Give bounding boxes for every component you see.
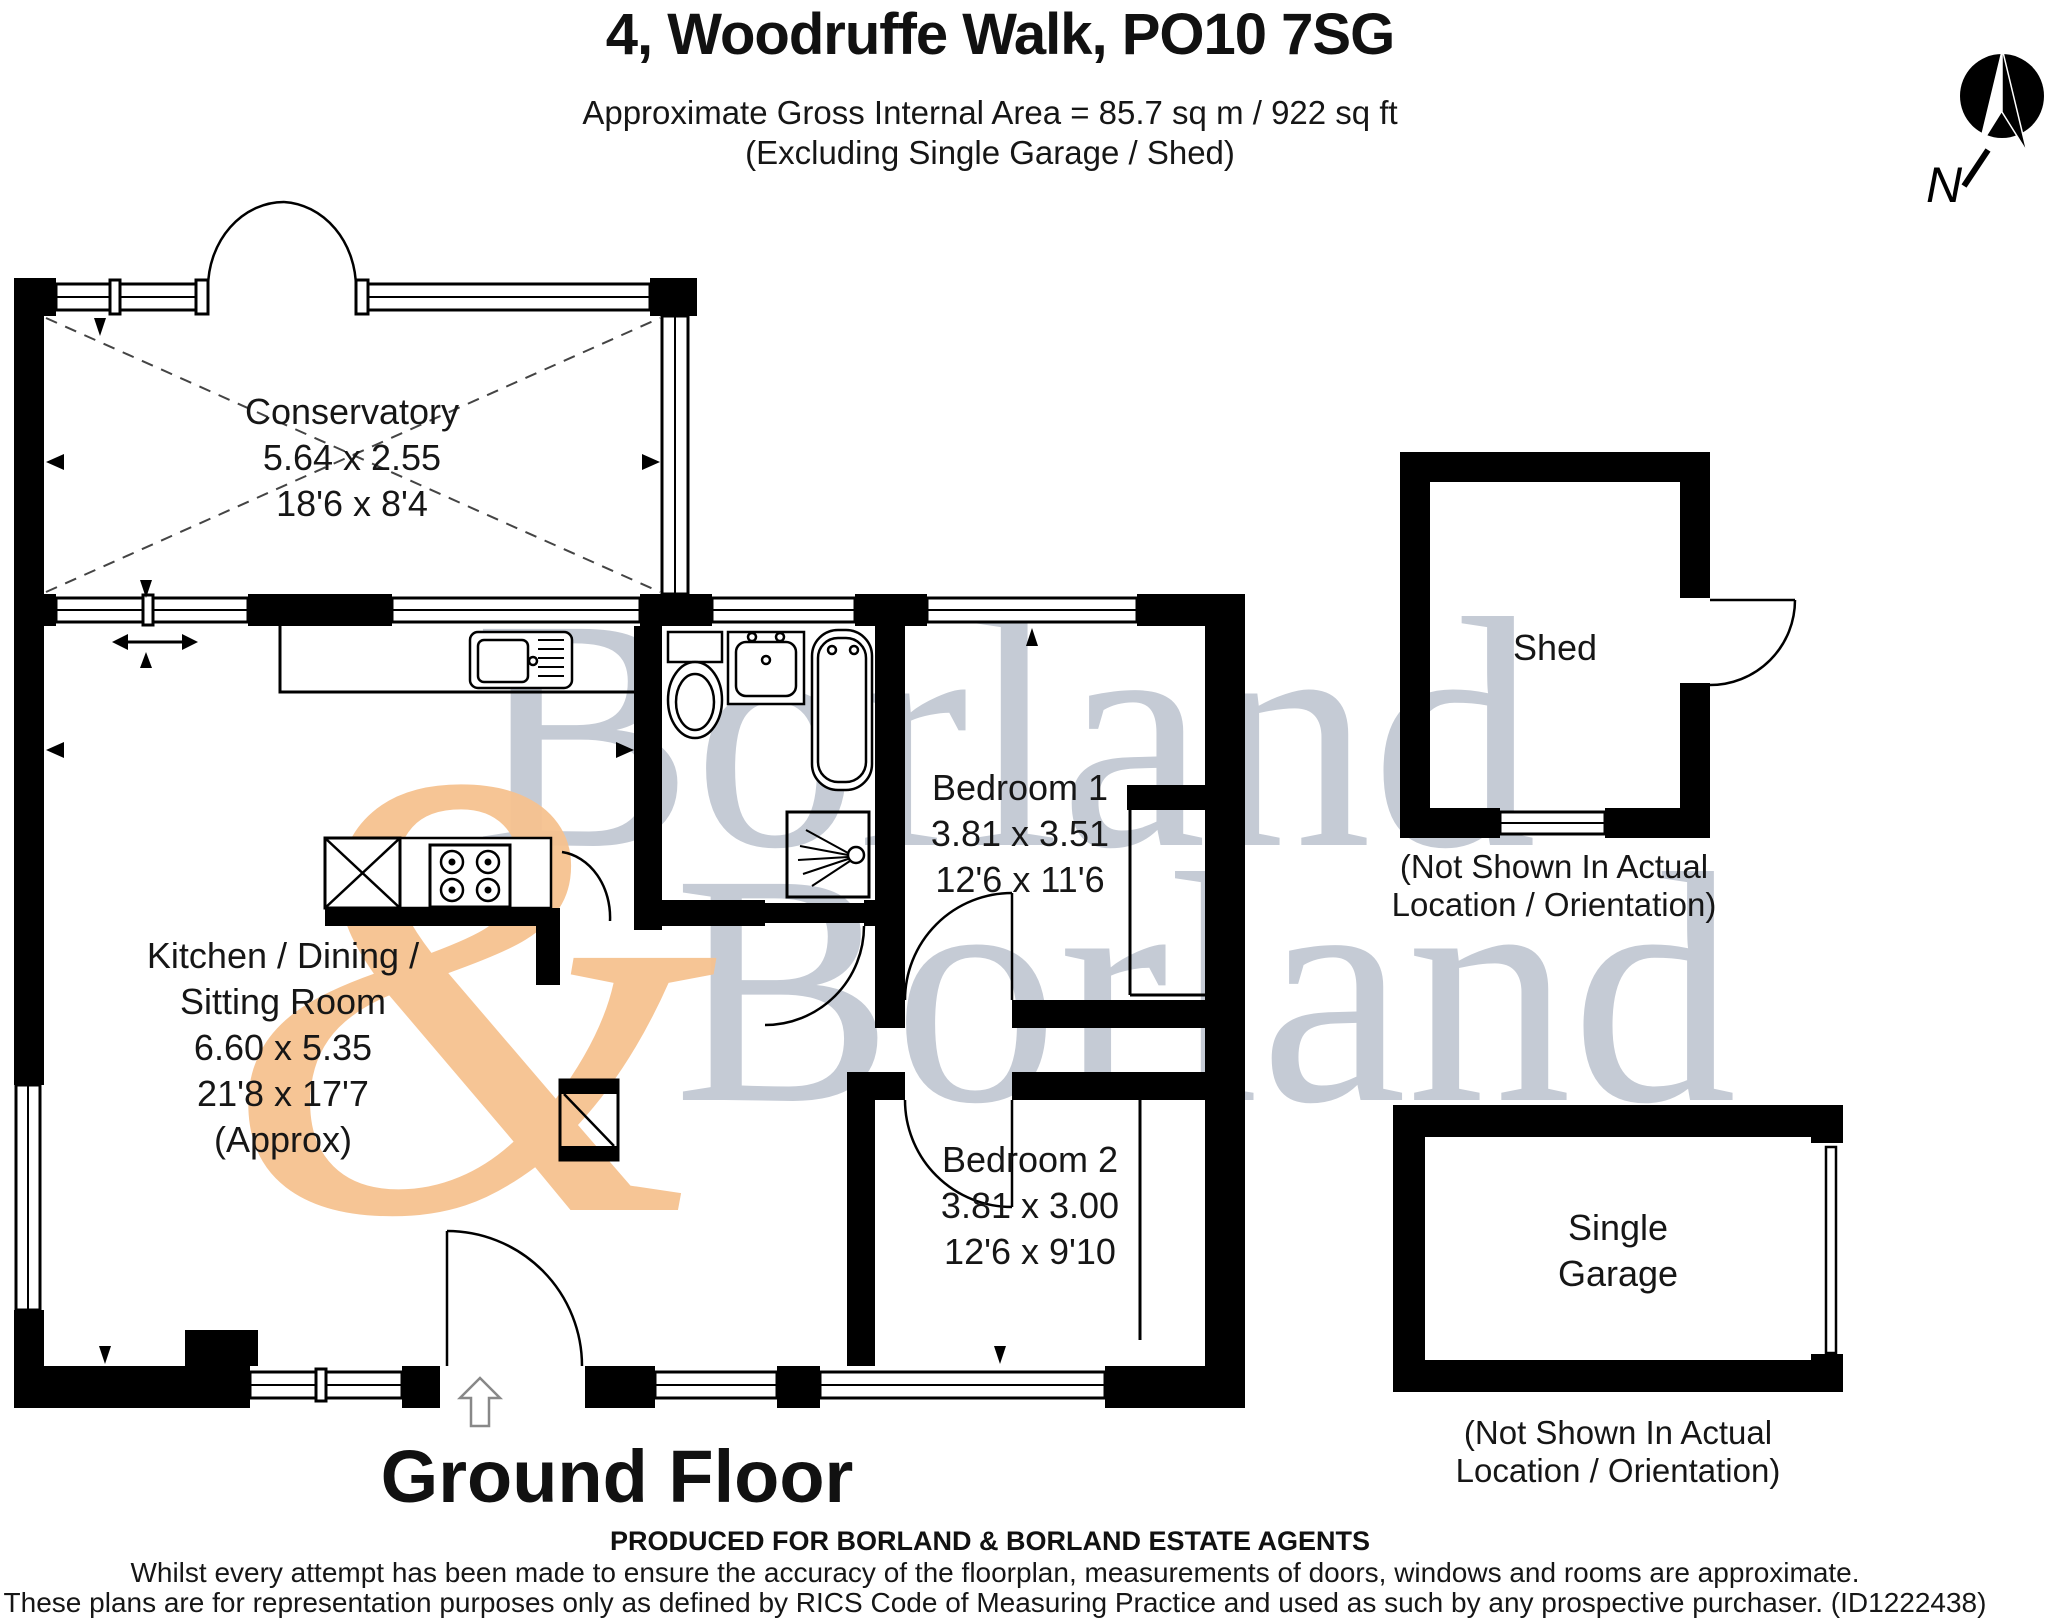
subtitle-area: Approximate Gross Internal Area = 85.7 s… <box>582 94 1397 131</box>
footer-produced-for: PRODUCED FOR BORLAND & BORLAND ESTATE AG… <box>610 1526 1370 1556</box>
compass-north-label: N <box>1926 157 1963 213</box>
window <box>368 284 650 310</box>
room-label: Kitchen / Dining / <box>147 935 419 976</box>
room-size-imperial: 12'6 x 11'6 <box>935 859 1104 900</box>
subtitle-exclusion: (Excluding Single Garage / Shed) <box>745 134 1235 171</box>
garage-note: Location / Orientation) <box>1456 1452 1781 1489</box>
bedroom1-label: Bedroom 1 3.81 x 3.51 12'6 x 11'6 <box>931 767 1109 900</box>
floor-label: Ground Floor <box>381 1435 854 1518</box>
window <box>56 595 248 625</box>
room-label: Garage <box>1558 1253 1678 1294</box>
window <box>16 1085 40 1310</box>
room-label: Shed <box>1513 627 1597 668</box>
kitchen-sink-icon <box>470 632 572 688</box>
room-size-metric: 3.81 x 3.00 <box>941 1185 1119 1226</box>
window <box>250 1369 402 1401</box>
shed-note: (Not Shown In Actual <box>1400 848 1708 885</box>
room-size-qualifier: (Approx) <box>214 1119 352 1160</box>
window <box>820 1372 1105 1398</box>
window <box>1500 812 1605 834</box>
bath-icon <box>812 630 872 790</box>
window <box>662 316 688 594</box>
bedroom2-label: Bedroom 2 3.81 x 3.00 12'6 x 9'10 <box>941 1139 1119 1272</box>
room-size-metric: 5.64 x 2.55 <box>263 437 441 478</box>
window <box>392 598 640 622</box>
garage-note: (Not Shown In Actual <box>1464 1414 1772 1451</box>
room-size-metric: 6.60 x 5.35 <box>194 1027 372 1068</box>
room-size-imperial: 18'6 x 8'4 <box>276 483 428 524</box>
window <box>56 280 196 314</box>
floorplan-page: Borland Borland & 4, Woodruffe Walk, PO1… <box>0 0 2048 1618</box>
basin-icon <box>728 632 804 704</box>
room-size-imperial: 12'6 x 9'10 <box>944 1231 1116 1272</box>
room-label: Bedroom 1 <box>932 767 1108 808</box>
window <box>712 598 855 622</box>
room-size-imperial: 21'8 x 17'7 <box>197 1073 369 1114</box>
room-size-metric: 3.81 x 3.51 <box>931 813 1109 854</box>
room-label: Bedroom 2 <box>942 1139 1118 1180</box>
room-label: Sitting Room <box>180 981 386 1022</box>
room-label: Conservatory <box>245 391 459 432</box>
page-title: 4, Woodruffe Walk, PO10 7SG <box>606 2 1394 67</box>
shed-note: Location / Orientation) <box>1392 886 1717 923</box>
window <box>655 1372 777 1398</box>
garage-door <box>1826 1147 1836 1353</box>
window <box>927 598 1137 622</box>
room-label: Single <box>1568 1207 1668 1248</box>
floorplan-canvas: Borland Borland & 4, Woodruffe Walk, PO1… <box>0 0 2048 1618</box>
footer-disclaimer-2: These plans are for representation purpo… <box>4 1587 1987 1618</box>
toilet-icon <box>668 632 722 738</box>
footer-disclaimer-1: Whilst every attempt has been made to en… <box>130 1557 1859 1588</box>
